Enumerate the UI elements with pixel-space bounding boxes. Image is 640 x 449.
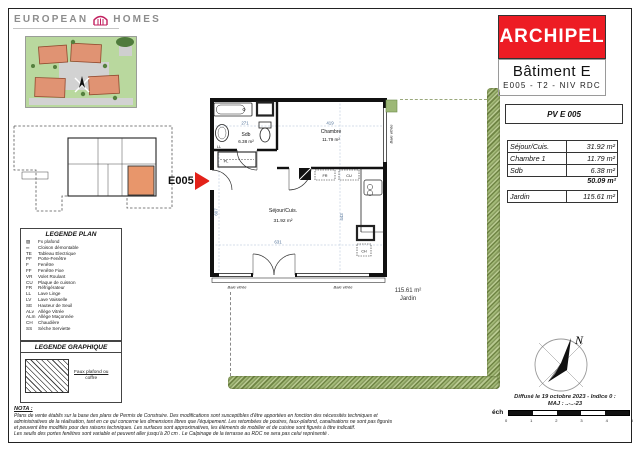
toilet-icon — [260, 128, 270, 142]
baie-vitree-label-right: Baie vitrée — [334, 285, 354, 290]
table-row: Jardin115.61 m² — [508, 191, 618, 203]
logo-text-right: HOMES — [113, 14, 161, 25]
scale-bar — [508, 410, 630, 416]
dim-sejour-width: 631 — [274, 240, 282, 245]
room-label-sdb: Sdb — [242, 132, 251, 138]
hedge-stub — [386, 100, 397, 112]
legend-graphique: LEGENDE GRAPHIQUE Faux plafond ou coffre — [20, 341, 122, 403]
appliance-box — [357, 226, 374, 240]
scale-label: éch — [492, 409, 503, 416]
legend-plan-title: LEGENDE PLAN — [21, 229, 121, 239]
garden-hedge-bottom — [228, 376, 499, 389]
garden-row-value: 115.61 m² — [567, 191, 618, 203]
nota-line: Les seuils des portes fenêtres sont vari… — [14, 431, 486, 437]
pv-reference-box: PV E 005 — [505, 104, 623, 124]
site-plan-thumbnail — [25, 36, 137, 108]
area-value: 31.92 m² — [567, 141, 618, 153]
dim-sdb-width: 271 — [241, 121, 249, 126]
duct-box — [257, 103, 273, 116]
garden-hedge-right — [487, 88, 500, 389]
logo-underline — [13, 28, 119, 29]
area-label: Sdb — [508, 165, 567, 177]
logo-text-left: EUROPEAN — [14, 14, 88, 25]
room-area-chambre: 11.79 m² — [322, 137, 340, 142]
scale-ticks: 0 1 2 3 4 5 — [505, 418, 633, 423]
hatch-sample-label: Faux plafond ou coffre — [74, 370, 108, 382]
dim-chambre-width: 419 — [326, 121, 334, 126]
main-floor-plan: Sdb 6.38 m² Chambre 11.79 m² Séjour/Cuis… — [193, 86, 403, 298]
legend-graphique-title: LEGENDE GRAPHIQUE — [21, 342, 121, 353]
baie-vitree-label-left: Baie vitrée — [228, 285, 248, 290]
highlighted-unit-e005 — [128, 166, 154, 195]
area-label: Séjour/Cuis. — [508, 141, 567, 153]
garden-label: 115.61 m² Jardin — [373, 288, 443, 303]
north-letter: N — [574, 333, 584, 347]
garden-row-label: Jardin — [508, 191, 567, 203]
table-row: Séjour/Cuis.31.92 m² — [508, 141, 618, 153]
house-icon — [91, 12, 110, 27]
total-area: 50.09 m² — [507, 176, 616, 185]
room-label-chambre: Chambre — [321, 129, 342, 135]
area-label: Chambre 1 — [508, 153, 567, 165]
nota-title: NOTA : — [14, 406, 486, 412]
unit-descriptor: E005 - T2 - NIV RDC — [499, 81, 605, 90]
building-name: Bâtiment E — [499, 63, 605, 80]
room-area-sejour: 31.92 m² — [274, 218, 293, 224]
building-overview-plan — [10, 118, 178, 230]
nota-block: NOTA : Plans de vente établis sur la bas… — [14, 406, 486, 437]
label-cu: CU — [346, 174, 352, 178]
legend-item: SSSèche Serviette — [21, 326, 121, 332]
plan-sheet: EUROPEAN HOMES — [0, 0, 640, 449]
diffusion-note: Diffusé le 19 octobre 2023 - Indice 0 : … — [493, 394, 637, 408]
garden-boundary-top — [400, 99, 487, 100]
label-pl: PL — [224, 160, 229, 164]
hatch-sample-icon — [25, 359, 69, 393]
building-title-box: Bâtiment E E005 - T2 - NIV RDC — [498, 59, 606, 96]
north-arrow-icon — [548, 338, 571, 382]
dim-left-height: 607 — [214, 208, 219, 216]
dim-sejour-height: 443 — [339, 213, 344, 221]
garden-name: Jardin — [373, 296, 443, 304]
north-compass: N — [527, 330, 597, 394]
room-area-sdb: 6.38 m² — [238, 139, 254, 144]
baie-vitree-label-chambre: Baie vitrée — [389, 124, 394, 144]
garden-table: Jardin115.61 m² — [507, 190, 618, 203]
table-row: Chambre 111.79 m² — [508, 153, 618, 165]
area-table: Séjour/Cuis.31.92 m² Chambre 111.79 m² S… — [507, 140, 618, 177]
room-label-sejour: Séjour/Cuis. — [269, 208, 297, 214]
sink-icon — [364, 180, 382, 195]
european-homes-logo: EUROPEAN HOMES — [14, 12, 161, 27]
garden-area-value: 115.61 m² — [373, 288, 443, 296]
label-ll: LL — [217, 145, 221, 149]
project-title-banner: ARCHIPEL — [498, 15, 606, 59]
legend-plan: LEGENDE PLAN ▨Fx plafond ═Cloison démont… — [20, 228, 122, 341]
label-fr: FR — [322, 174, 327, 178]
unit-pointer-label: E005 — [168, 175, 194, 187]
terrace-threshold — [212, 278, 385, 283]
toilet-tank — [259, 122, 271, 128]
area-value: 11.79 m² — [567, 153, 618, 165]
garden-boundary-dashed — [230, 292, 231, 376]
table-row: Sdb6.38 m² — [508, 165, 618, 177]
label-ch: CH — [361, 250, 367, 254]
area-value: 6.38 m² — [567, 165, 618, 177]
